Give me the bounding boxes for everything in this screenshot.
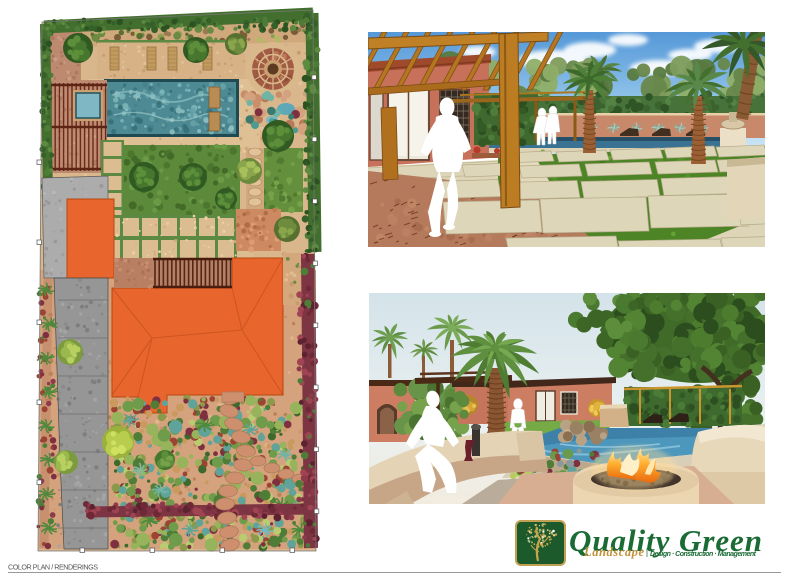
svg-text:Design · Construction · Manage: Design · Construction · Management bbox=[650, 551, 757, 558]
svg-text:COLOR PLAN / RENDERINGS: COLOR PLAN / RENDERINGS bbox=[8, 563, 98, 572]
svg-text:Landscape: Landscape bbox=[583, 545, 644, 559]
